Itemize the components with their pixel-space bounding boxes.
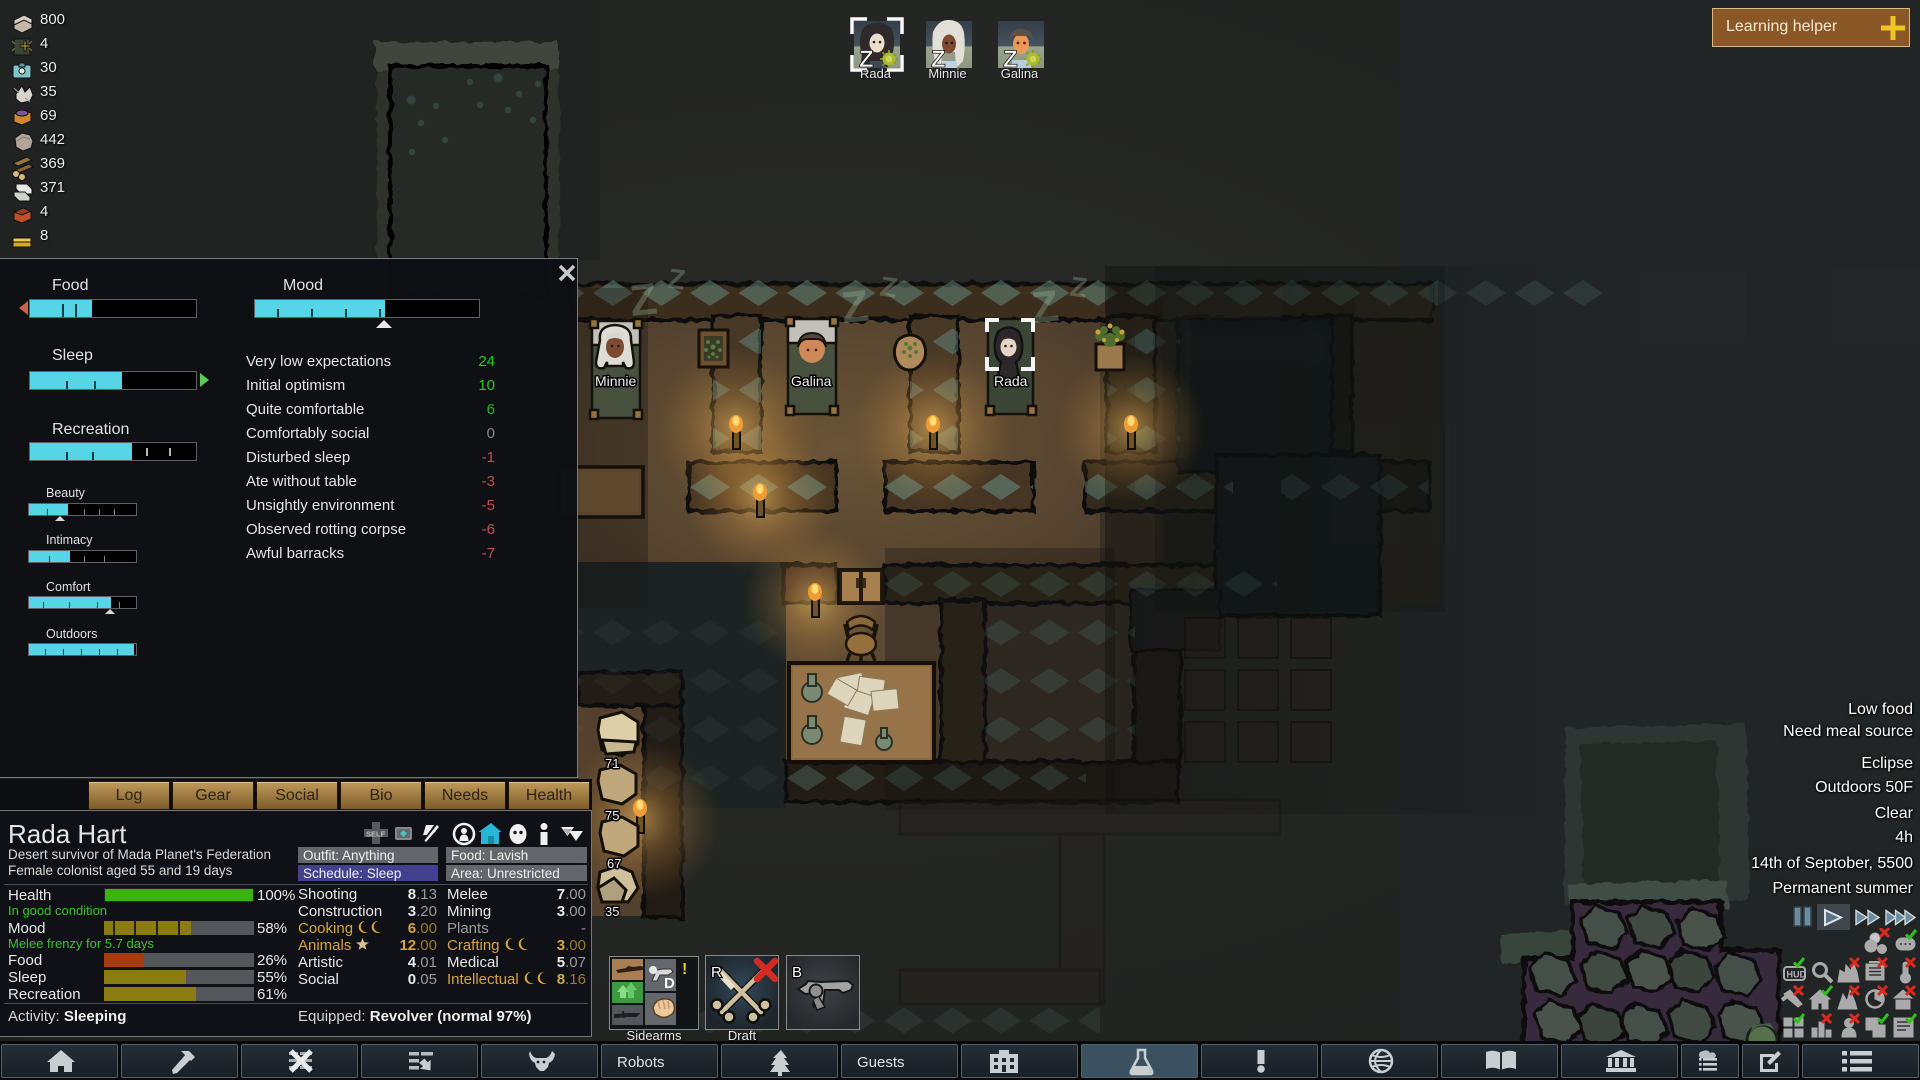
svg-text:Galina: Galina bbox=[791, 373, 832, 389]
svg-text:75: 75 bbox=[605, 808, 619, 823]
svg-text:D: D bbox=[664, 975, 675, 992]
svg-text:Guests: Guests bbox=[857, 1054, 905, 1071]
svg-text:B: B bbox=[792, 964, 802, 981]
svg-text:SELF: SELF bbox=[366, 830, 386, 839]
svg-text:71: 71 bbox=[605, 756, 619, 771]
svg-text:Z: Z bbox=[628, 274, 660, 326]
svg-text:HUD: HUD bbox=[1787, 970, 1807, 980]
svg-text:R: R bbox=[711, 964, 722, 981]
svg-text:35: 35 bbox=[605, 904, 619, 919]
svg-text:Minnie: Minnie bbox=[595, 373, 636, 389]
svg-text:67: 67 bbox=[607, 856, 621, 871]
svg-text:Rada: Rada bbox=[994, 373, 1028, 389]
svg-text:!: ! bbox=[682, 961, 687, 978]
svg-text:Z: Z bbox=[839, 281, 871, 333]
svg-text:Robots: Robots bbox=[617, 1054, 665, 1071]
svg-text:Z: Z bbox=[1029, 281, 1061, 333]
